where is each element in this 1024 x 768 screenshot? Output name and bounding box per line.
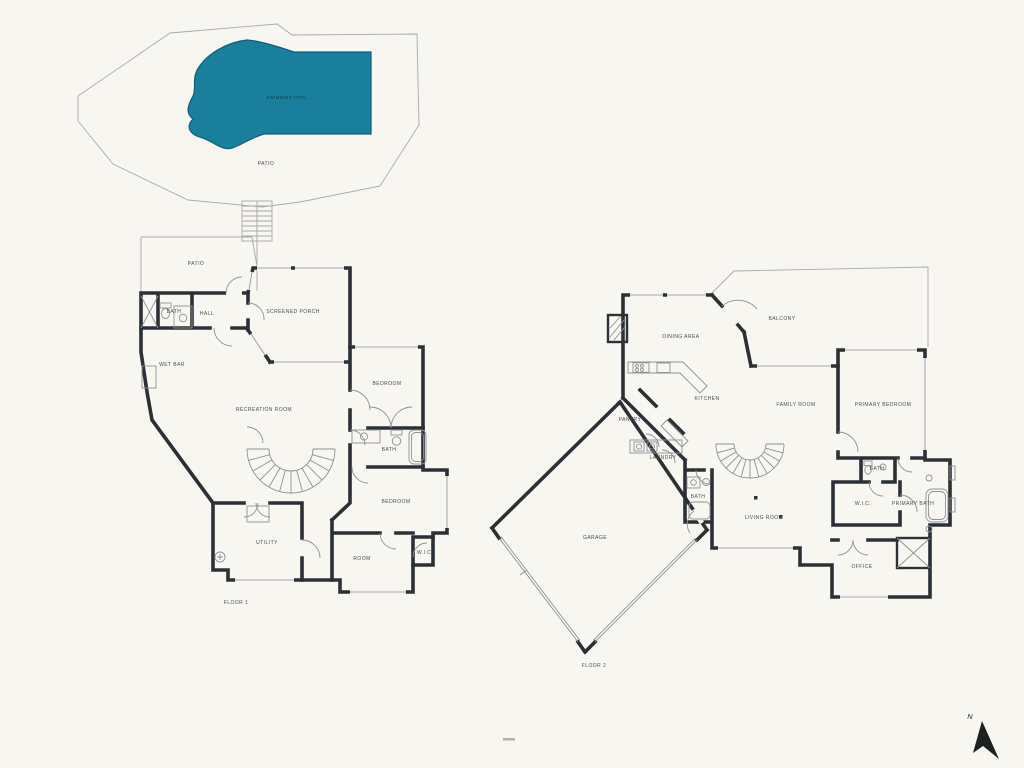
room-label-balcony: BALCONY bbox=[768, 316, 795, 322]
floor2-title: FLOOR 2 bbox=[582, 663, 607, 669]
room-label-primary-bedroom: PRIMARY BEDROOM bbox=[855, 402, 912, 408]
room-label-bath: BATH bbox=[691, 494, 706, 500]
room-label-bath-small: BATH bbox=[870, 466, 885, 472]
room-label-garage: GARAGE bbox=[583, 535, 607, 541]
room-label-utility: UTILITY bbox=[256, 540, 278, 546]
room-label-wic: W.I.C. bbox=[855, 501, 871, 507]
floor1-title: FLOOR 1 bbox=[224, 600, 249, 606]
room-label-patio: PATIO bbox=[188, 261, 205, 267]
room-label-recreation-room: RECREATION ROOM bbox=[236, 407, 292, 413]
room-label-family-room: FAMILY ROOM bbox=[776, 402, 815, 408]
room-label-kitchen: KITCHEN bbox=[694, 396, 719, 402]
room-label-hall: HALL bbox=[200, 311, 214, 317]
floor-plan-page: SWIMMING POOL PATIO bbox=[0, 0, 1024, 768]
room-label-room: ROOM bbox=[353, 556, 370, 562]
room-label-bedroom-lower: BEDROOM bbox=[382, 499, 411, 505]
room-label-bath-right: BATH bbox=[382, 447, 397, 453]
page-background bbox=[0, 0, 1024, 768]
room-label-office: OFFICE bbox=[851, 564, 872, 570]
room-label-wic: W.I.C. bbox=[417, 550, 433, 556]
room-label-bath: BATH bbox=[167, 309, 182, 315]
room-label-pantry: PANTRY bbox=[619, 417, 642, 423]
room-label-dining-area: DINING AREA bbox=[662, 334, 699, 340]
floor-plan-drawing: SWIMMING POOL PATIO bbox=[0, 0, 1024, 768]
room-label-screened-porch: SCREENED PORCH bbox=[266, 309, 320, 315]
pool-label: SWIMMING POOL bbox=[266, 95, 307, 100]
north-label: N bbox=[967, 712, 973, 721]
room-label-primary-bath: PRIMARY BATH bbox=[892, 501, 934, 507]
pool-patio-label: PATIO bbox=[258, 161, 275, 167]
room-label-bedroom-upper: BEDROOM bbox=[373, 381, 402, 387]
artifact-mark bbox=[503, 738, 515, 741]
room-label-wet-bar: WET BAR bbox=[159, 362, 185, 368]
room-label-laundry: LAUNDRY bbox=[650, 455, 677, 461]
room-label-living-room: LIVING ROOM bbox=[745, 515, 783, 521]
